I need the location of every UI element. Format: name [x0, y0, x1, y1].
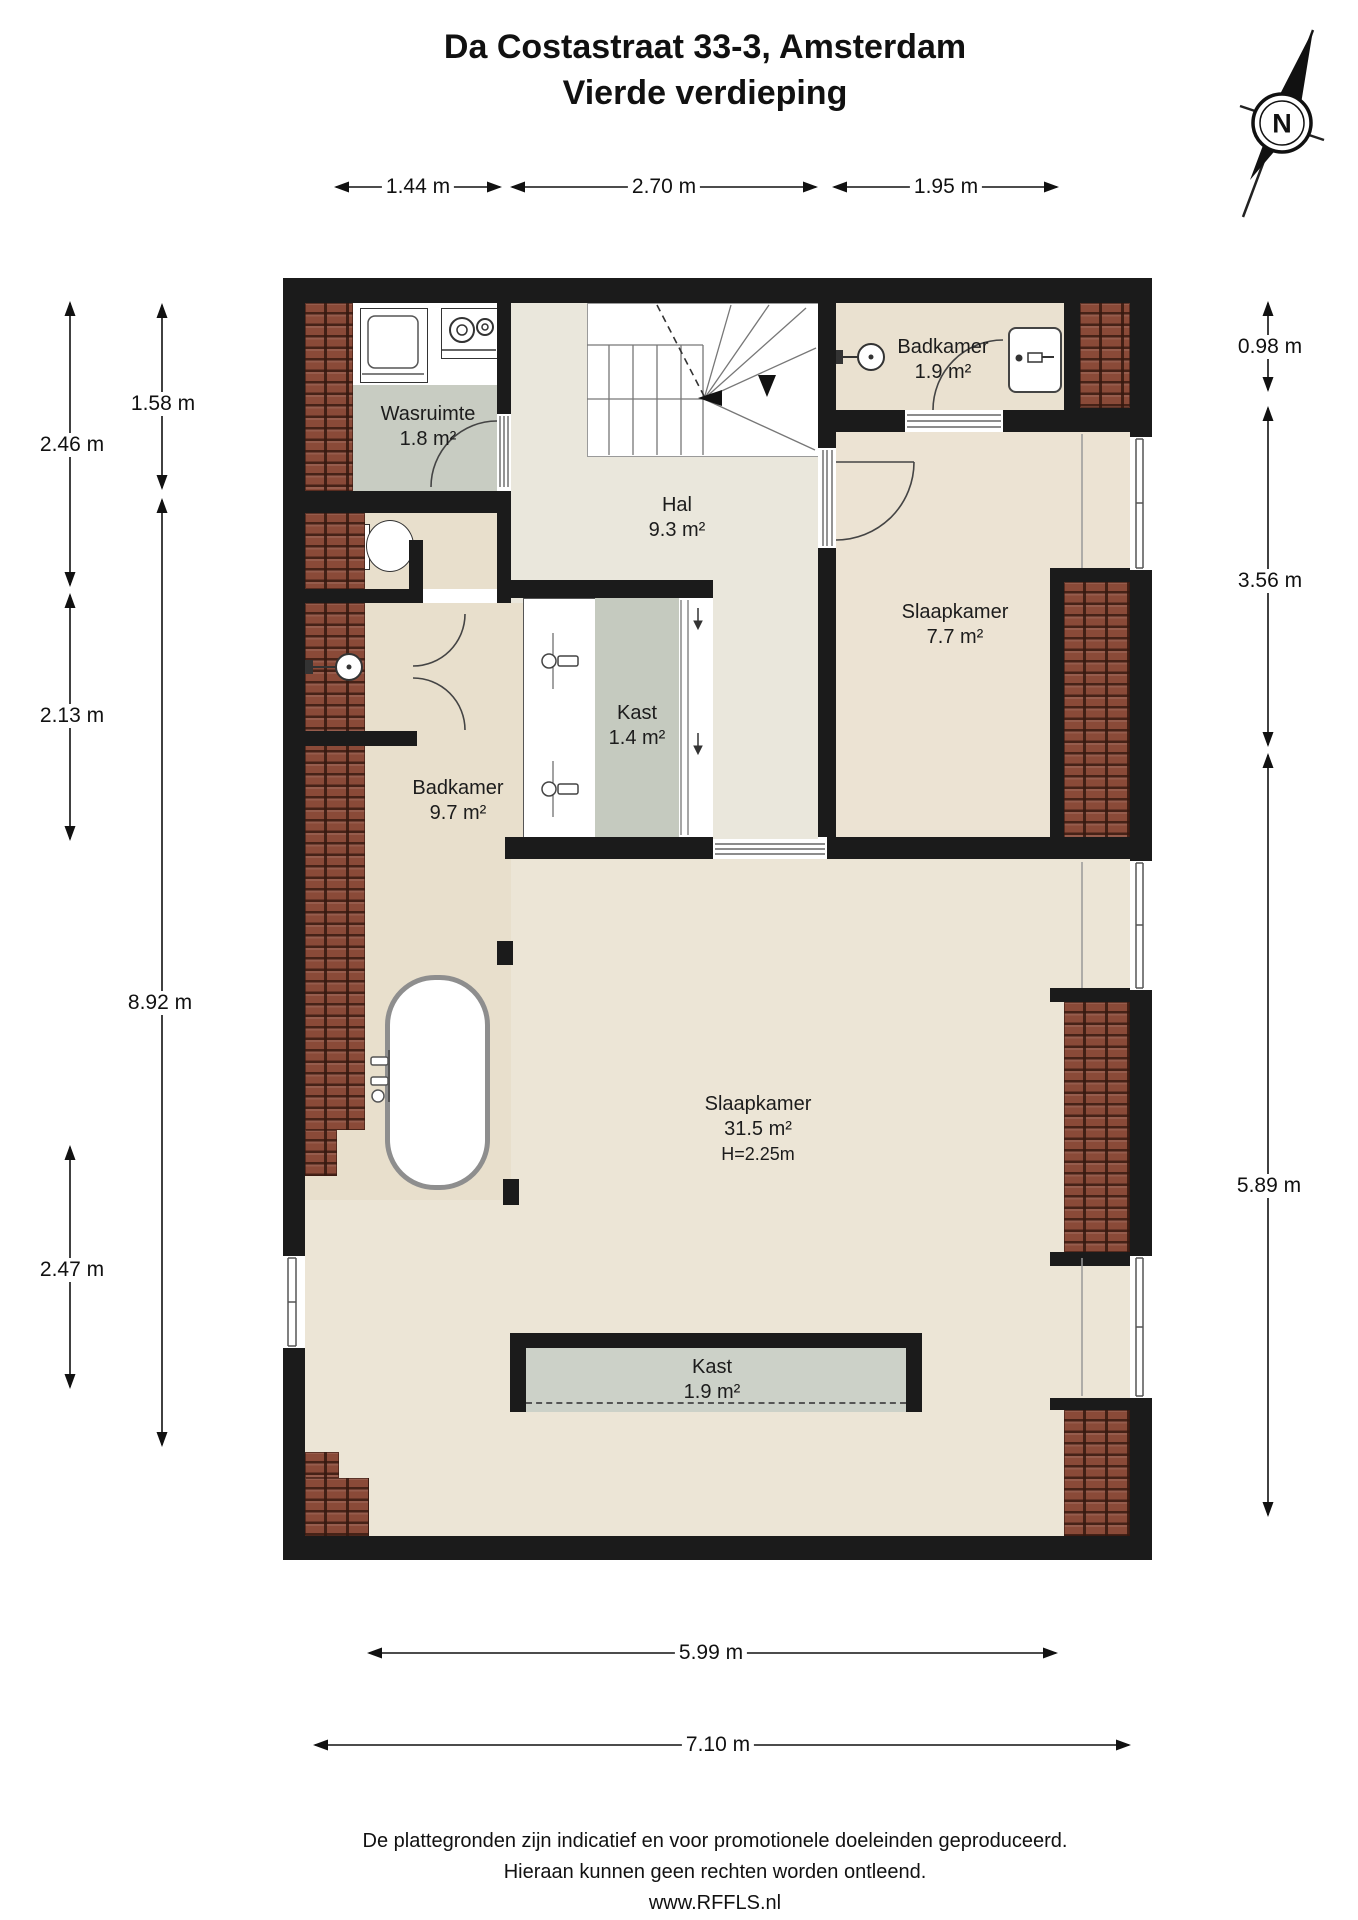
- dimension-label-left-outer-3: 2.47 m: [36, 1258, 108, 1282]
- room-name: Wasruimte: [381, 402, 476, 427]
- staircase: [587, 303, 819, 457]
- room-label-badkamer-groot: Badkamer 9.7 m²: [412, 776, 503, 826]
- window-right-1: [1130, 437, 1152, 570]
- room-label-kast-groot: Kast 1.9 m²: [684, 1355, 741, 1405]
- footer-website: www.RFFLS.nl: [363, 1888, 1068, 1919]
- roof-hatch-left-2: [305, 513, 365, 589]
- room-label-wasruimte: Wasruimte 1.8 m²: [381, 402, 476, 452]
- room-name: Kast: [609, 701, 666, 726]
- pillar-2: [503, 1179, 519, 1205]
- double-washbasin-counter: [523, 598, 597, 839]
- floorplan-page: Da Costastraat 33-3, Amsterdam Vierde ve…: [0, 0, 1358, 1920]
- wall-hal-east-b: [818, 548, 836, 837]
- room-area: 9.7 m²: [412, 801, 503, 826]
- wall-badkamer-klein-south-a: [836, 410, 905, 432]
- title-line2: Vierde verdieping: [444, 70, 966, 116]
- room-name: Badkamer: [897, 335, 988, 360]
- roof-hatch-left-4b: [305, 1452, 339, 1478]
- room-area: 1.4 m²: [609, 726, 666, 751]
- wall-hal-east-a: [818, 303, 836, 448]
- door-jamb-wasruimte: [497, 414, 511, 489]
- roof-hatch-left-3b: [305, 1130, 337, 1176]
- kast-sliding-door-track: [679, 598, 713, 837]
- wall-badkamer-klein-south-b: [1003, 410, 1064, 432]
- room-name: Hal: [649, 493, 706, 518]
- wall-outer-left-a: [283, 278, 305, 1256]
- dimension-label-right-2: 3.56 m: [1234, 569, 1306, 593]
- room-label-kast-klein: Kast 1.4 m²: [609, 701, 666, 751]
- roof-hatch-right-2: [1064, 582, 1130, 838]
- wall-toilet-stub: [409, 540, 423, 603]
- wall-wasruimte-south: [283, 491, 511, 513]
- room-name: Slaapkamer: [705, 1092, 812, 1117]
- title-line1: Da Costastraat 33-3, Amsterdam: [444, 24, 966, 70]
- room-label-slaapkamer-klein: Slaapkamer 7.7 m²: [902, 600, 1009, 650]
- room-name: Slaapkamer: [902, 600, 1009, 625]
- wall-kast-south: [505, 837, 713, 859]
- room-area: 9.3 m²: [649, 518, 706, 543]
- wall-toilet-south: [305, 589, 423, 603]
- roof-hatch-left-3: [305, 603, 365, 1130]
- washing-machine-icon: [360, 308, 428, 383]
- room-label-badkamer-klein: Badkamer 1.9 m²: [897, 335, 988, 385]
- roof-hatch-left-1: [305, 303, 353, 491]
- roof-hatch-right-4: [1064, 1410, 1130, 1536]
- bathtub-icon: [385, 975, 490, 1190]
- wall-outer-left-b: [283, 1348, 305, 1560]
- dimension-label-left-inner-2: 8.92 m: [124, 991, 196, 1015]
- footer-line1: De plattegronden zijn indicatief en voor…: [363, 1826, 1068, 1857]
- room-label-slaapkamer-groot: Slaapkamer 31.5 m² H=2.25m: [705, 1092, 812, 1167]
- wall-outer-right-d: [1130, 1398, 1152, 1536]
- roof-hatch-right-3: [1064, 1002, 1130, 1252]
- room-label-hal: Hal 9.3 m²: [649, 493, 706, 543]
- room-height: H=2.25m: [705, 1142, 812, 1167]
- wall-stub-right-1: [1064, 408, 1152, 432]
- sliding-door-threshold-slaapkamer: [713, 839, 827, 859]
- dimension-label-right-1: 0.98 m: [1234, 335, 1306, 359]
- wall-shower-south: [305, 731, 417, 746]
- wall-kast-north: [497, 580, 713, 598]
- room-area: 1.9 m²: [897, 360, 988, 385]
- compass: N: [1230, 20, 1358, 230]
- toilet-bowl-icon: [366, 520, 414, 572]
- room-name: Kast: [684, 1355, 741, 1380]
- wall-wasruimte-east: [497, 303, 511, 414]
- dimension-label-left-inner-1: 1.58 m: [127, 392, 199, 416]
- wall-roof-right-2-west: [1050, 582, 1064, 838]
- door-threshold-badkamer-klein: [905, 410, 1003, 432]
- room-name: Badkamer: [412, 776, 503, 801]
- dimension-label-top-2: 2.70 m: [628, 175, 700, 199]
- dimension-label-left-outer-1: 2.46 m: [36, 433, 108, 457]
- room-area: 7.7 m²: [902, 625, 1009, 650]
- room-area: 31.5 m²: [705, 1117, 812, 1142]
- roof-hatch-right-1: [1080, 303, 1130, 408]
- wall-slaapkamer-klein-south: [827, 837, 1152, 859]
- window-left: [283, 1256, 305, 1348]
- dimension-label-right-3: 5.89 m: [1233, 1174, 1305, 1198]
- dimension-label-top-3: 1.95 m: [910, 175, 982, 199]
- wall-outer-bottom: [283, 1536, 1152, 1560]
- compass-north-label: N: [1272, 109, 1292, 139]
- wall-outer-right-c: [1130, 990, 1152, 1258]
- door-jamb-slaapkamer-klein: [818, 448, 836, 548]
- wall-stub-right-2: [1050, 568, 1152, 582]
- wall-stub-right-3: [1050, 988, 1152, 1002]
- boiler-icon: [441, 308, 499, 359]
- wall-outer-top: [283, 278, 1152, 303]
- wall-badkamer-klein-east: [1064, 303, 1080, 410]
- window-right-3: [1130, 1256, 1152, 1398]
- room-area: 1.8 m²: [381, 427, 476, 452]
- room-area: 1.9 m²: [684, 1380, 741, 1405]
- wall-outer-right-b: [1130, 570, 1152, 861]
- page-title: Da Costastraat 33-3, Amsterdam Vierde ve…: [444, 24, 966, 116]
- footer-disclaimer: De plattegronden zijn indicatief en voor…: [363, 1826, 1068, 1919]
- dimension-label-bottom-2: 7.10 m: [682, 1733, 754, 1757]
- dimension-label-bottom-1: 5.99 m: [675, 1641, 747, 1665]
- window-right-2: [1130, 861, 1152, 990]
- dimension-label-left-outer-2: 2.13 m: [36, 704, 108, 728]
- dimension-label-top-1: 1.44 m: [382, 175, 454, 199]
- roof-hatch-left-4: [305, 1478, 369, 1536]
- wall-stub-right-5: [1050, 1398, 1152, 1410]
- washbasin-icon: [1008, 327, 1062, 393]
- pillar-1: [497, 941, 513, 965]
- footer-line2: Hieraan kunnen geen rechten worden ontle…: [363, 1857, 1068, 1888]
